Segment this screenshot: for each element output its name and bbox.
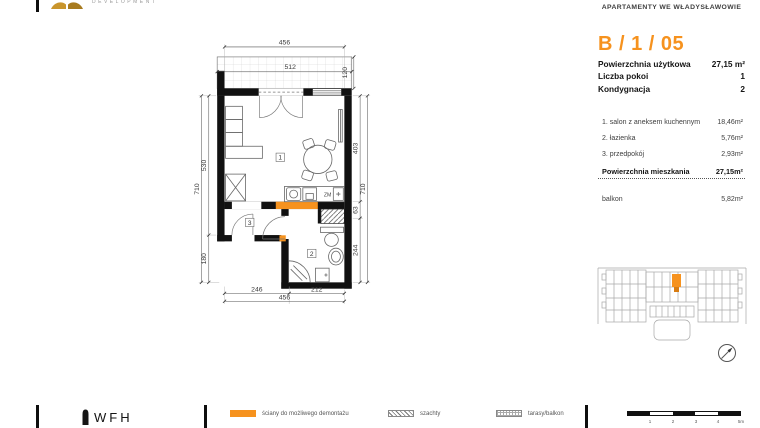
summary-row: Powierzchnia użytkowa 27,15 m²	[598, 59, 745, 69]
scale-tick: 3	[695, 419, 698, 424]
dim-right-total: 710	[360, 183, 367, 195]
dim-right-c: 244	[352, 244, 359, 256]
summary-row: Kondygnacja 2	[598, 84, 745, 94]
brand-emblem-icon	[50, 0, 84, 10]
kitchen-dishwasher-label: ZM	[324, 193, 332, 199]
dim-left-b: 180	[201, 253, 208, 265]
scale-bar	[627, 411, 741, 416]
lighthouse-icon	[80, 408, 91, 426]
highlighted-unit-balcony	[674, 287, 679, 292]
summary-value: 2	[740, 84, 745, 94]
dim-right-b: 63	[352, 206, 359, 214]
highlighted-unit	[672, 274, 681, 287]
dim-bottom-b: 212	[311, 286, 323, 293]
shaft	[321, 209, 344, 223]
compass-icon	[716, 342, 738, 364]
room-row: 2. łazienka 5,76m²	[598, 135, 745, 142]
legend-label: ściany do możliwego demontażu	[262, 411, 349, 417]
dim-bottom-a: 246	[251, 286, 263, 293]
balcony	[217, 57, 352, 89]
total-area-row: Powierzchnia mieszkania 27,15m²	[598, 167, 745, 179]
footer-divider-bar	[36, 405, 39, 428]
summary-label: Kondygnacja	[598, 84, 650, 94]
legend-label: tarasy/balkon	[528, 411, 564, 417]
dim-top-total: 456	[279, 39, 291, 46]
floor-plan: 456 512 120 530 180 710 403 63 244 710 2…	[189, 38, 377, 306]
room-row: 3. przedpokój 2,93m²	[598, 151, 745, 158]
project-title: APARTAMENTY WE WŁADYSŁAWOWIE	[598, 4, 745, 11]
demolishable-wall	[276, 202, 318, 242]
hall-opening	[232, 202, 261, 209]
summary-value: 27,15 m²	[712, 59, 745, 69]
room-row: 1. salon z aneksem kuchennym 18,46m²	[598, 119, 745, 126]
scale-tick: 1	[649, 419, 652, 424]
dim-left-total: 710	[194, 183, 201, 195]
room-area: 5,76m²	[721, 135, 743, 142]
orange-swatch	[230, 410, 256, 417]
total-value: 27,15m²	[716, 167, 743, 176]
dim-balcony-depth: 120	[342, 67, 349, 79]
unit-info-panel: APARTAMENTY WE WŁADYSŁAWOWIE B / 1 / 05 …	[598, 4, 745, 203]
balcony-area-row: balkon 5,82m²	[598, 196, 745, 203]
scale-tick: 5m	[738, 419, 744, 424]
footer-logo: WFH	[80, 408, 133, 426]
scale-tick: 4	[717, 419, 720, 424]
dim-balcony-width: 512	[285, 64, 297, 71]
room-area: 2,93m²	[721, 151, 743, 158]
balcony-label: balkon	[602, 196, 623, 203]
unit-code: B / 1 / 05	[598, 33, 745, 56]
room-area: 18,46m²	[717, 119, 743, 126]
legend-item-terraces: tarasy/balkon	[496, 410, 564, 417]
dim-right-a: 403	[352, 142, 359, 154]
hatch-swatch	[388, 410, 414, 417]
room-label: 3. przedpokój	[602, 151, 644, 158]
footer-divider-bar	[585, 405, 588, 428]
scale-tick: 2	[672, 419, 675, 424]
grid-swatch	[496, 410, 522, 417]
balcony-value: 5,82m²	[721, 196, 743, 203]
summary-row: Liczba pokoi 1	[598, 71, 745, 81]
footer-logo-text: WFH	[94, 410, 133, 425]
legend-item-shafts: szachty	[388, 410, 440, 417]
room-label-bathroom: 2	[310, 251, 314, 258]
footer-divider-bar	[204, 405, 207, 428]
room-label: 2. łazienka	[602, 135, 635, 142]
dim-bottom-total: 456	[279, 295, 291, 302]
brand-divider-bar	[36, 0, 39, 12]
room-label-salon: 1	[278, 155, 282, 162]
room-list: 1. salon z aneksem kuchennym 18,46m² 2. …	[598, 119, 745, 158]
summary-label: Liczba pokoi	[598, 71, 648, 81]
summary-label: Powierzchnia użytkowa	[598, 59, 691, 69]
room-label: 1. salon z aneksem kuchennym	[602, 119, 700, 126]
floorplan-sheet: { "colors": { "accent": "#F6921E", "wall…	[0, 0, 760, 428]
room-label-hall: 3	[248, 220, 252, 227]
legend-label: szachty	[420, 411, 440, 417]
site-plan	[596, 254, 748, 346]
brand-development-label: DEVELOPMENT	[92, 0, 157, 5]
total-label: Powierzchnia mieszkania	[602, 167, 690, 176]
dim-left-a: 530	[201, 160, 208, 172]
legend-item-demolishable: ściany do możliwego demontażu	[230, 410, 349, 417]
summary-value: 1	[740, 71, 745, 81]
